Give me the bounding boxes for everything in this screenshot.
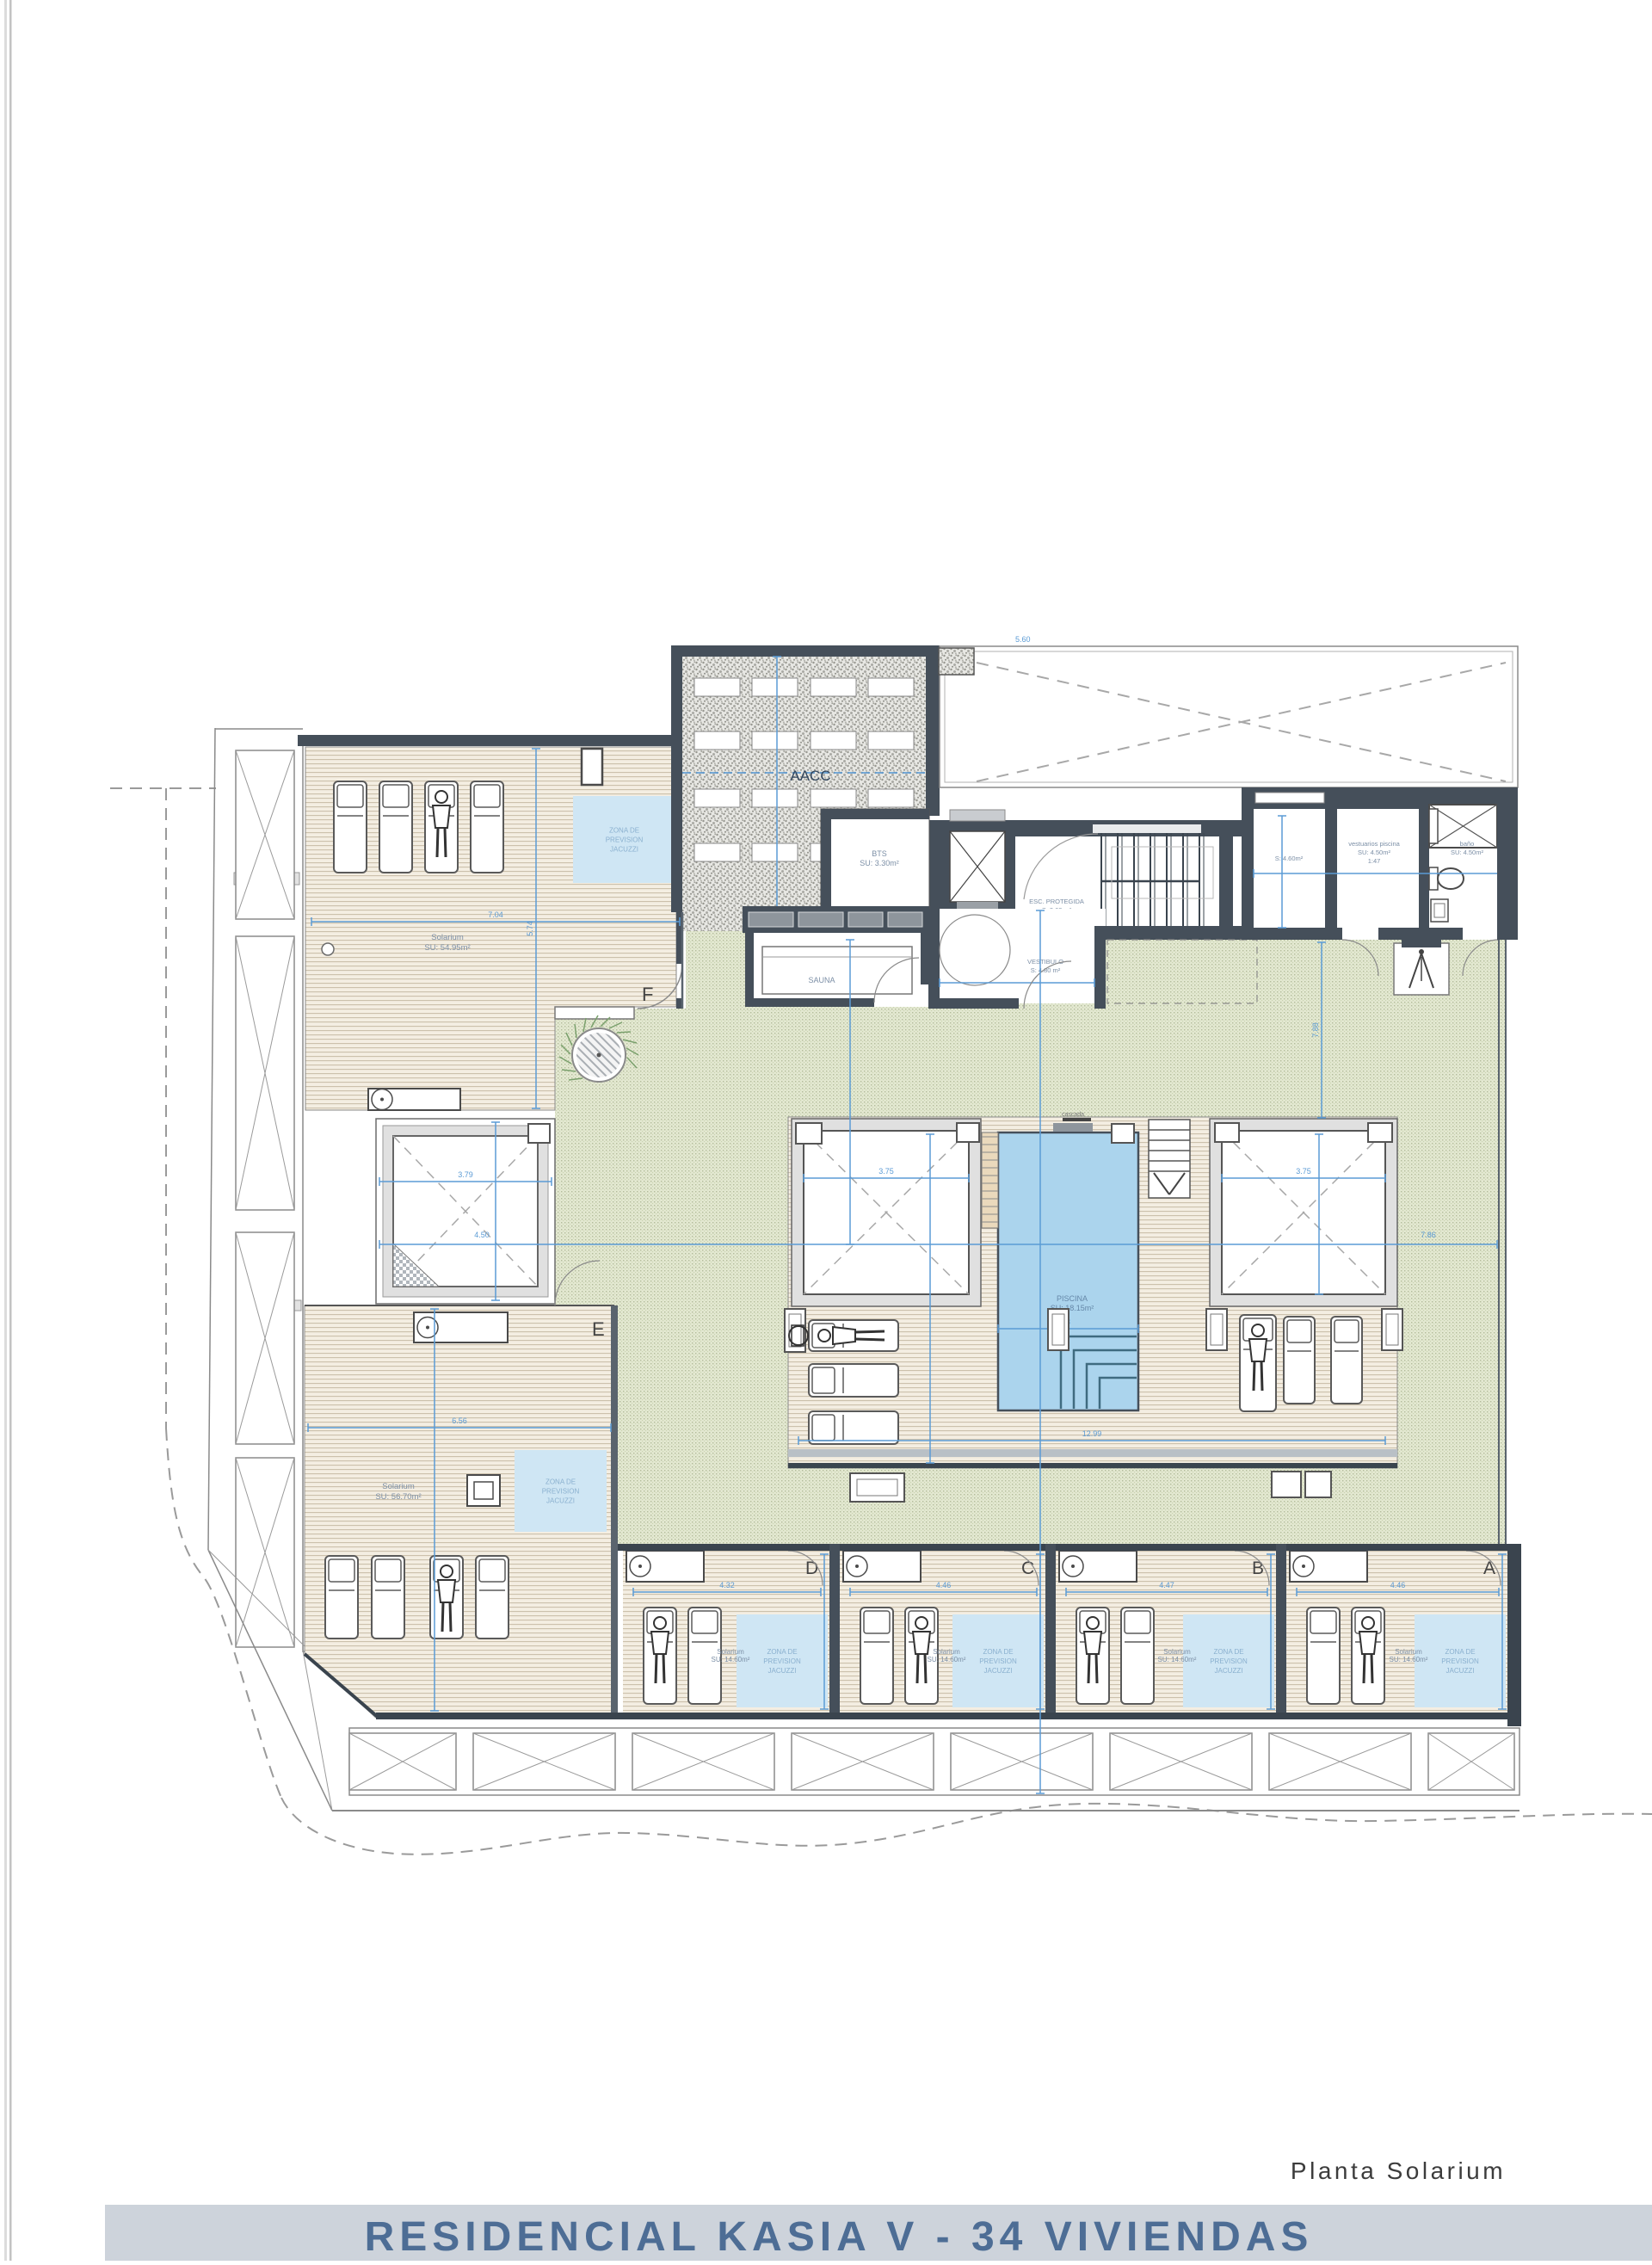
svg-text:3.75: 3.75	[1296, 1167, 1311, 1176]
svg-text:Planta Solarium: Planta Solarium	[1291, 2157, 1506, 2184]
svg-text:SU: 14.60m²: SU: 14.60m²	[1390, 1656, 1428, 1663]
svg-text:PREVISION: PREVISION	[1441, 1657, 1479, 1665]
svg-text:ZONA DE: ZONA DE	[609, 827, 639, 835]
svg-text:JACUZZI: JACUZZI	[984, 1667, 1013, 1675]
svg-text:AACC: AACC	[790, 768, 830, 784]
svg-text:BTS: BTS	[872, 849, 887, 858]
svg-text:JACUZZI: JACUZZI	[1215, 1667, 1243, 1675]
svg-text:SU: 3.30m²: SU: 3.30m²	[860, 859, 899, 867]
svg-text:3.75: 3.75	[878, 1167, 894, 1176]
svg-text:D: D	[805, 1558, 818, 1578]
svg-text:JACUZZI: JACUZZI	[768, 1667, 797, 1675]
svg-text:F: F	[642, 984, 653, 1005]
svg-text:SAUNA: SAUNA	[808, 976, 835, 984]
svg-text:S: 4.60m²: S: 4.60m²	[1275, 855, 1304, 862]
svg-text:7.04: 7.04	[488, 910, 503, 919]
svg-text:Solarium: Solarium	[1163, 1648, 1191, 1656]
svg-text:3.79: 3.79	[458, 1170, 473, 1179]
svg-text:PREVISION: PREVISION	[542, 1488, 580, 1496]
svg-text:SU: 14.60m²: SU: 14.60m²	[712, 1656, 750, 1663]
svg-text:6.56: 6.56	[452, 1416, 467, 1425]
svg-text:4.46: 4.46	[1390, 1581, 1406, 1589]
svg-text:A: A	[1483, 1558, 1495, 1578]
svg-text:B: B	[1252, 1558, 1264, 1578]
svg-text:12.99: 12.99	[1082, 1429, 1102, 1438]
svg-text:5.74: 5.74	[526, 921, 534, 936]
svg-text:4.46: 4.46	[936, 1581, 952, 1589]
svg-text:RESIDENCIAL KASIA V - 34 VIVIE: RESIDENCIAL KASIA V - 34 VIVIENDAS	[365, 2214, 1314, 2260]
svg-text:vestuarios piscina: vestuarios piscina	[1348, 840, 1400, 848]
svg-text:1:47: 1:47	[1368, 857, 1381, 865]
svg-text:VESTIBULO: VESTIBULO	[1027, 958, 1063, 966]
svg-text:ZONA DE: ZONA DE	[1213, 1648, 1243, 1656]
svg-text:S: 4.80 m²: S: 4.80 m²	[1031, 966, 1061, 974]
svg-text:7.86: 7.86	[1421, 1231, 1436, 1239]
svg-text:PREVISION: PREVISION	[606, 836, 644, 844]
svg-text:Solarium: Solarium	[933, 1648, 960, 1656]
svg-text:PISCINA: PISCINA	[1057, 1294, 1088, 1303]
svg-text:4.50: 4.50	[474, 1231, 490, 1239]
svg-text:C: C	[1021, 1558, 1034, 1578]
svg-text:SU: 4.50m²: SU: 4.50m²	[1358, 849, 1390, 856]
svg-text:JACUZZI: JACUZZI	[1446, 1667, 1475, 1675]
svg-text:ZONA DE: ZONA DE	[546, 1478, 576, 1486]
svg-text:ZONA DE: ZONA DE	[983, 1648, 1013, 1656]
svg-text:SU: 14.60m²: SU: 14.60m²	[1158, 1656, 1197, 1663]
svg-text:7.88: 7.88	[1311, 1022, 1320, 1038]
svg-text:Solarium: Solarium	[717, 1648, 744, 1656]
svg-text:SU: 14.60m²: SU: 14.60m²	[928, 1656, 966, 1663]
svg-text:cascada: cascada	[1062, 1112, 1084, 1118]
svg-text:JACUZZI: JACUZZI	[546, 1497, 575, 1505]
svg-text:ZONA DE: ZONA DE	[767, 1648, 797, 1656]
svg-text:ESC. PROTEGIDA: ESC. PROTEGIDA	[1029, 898, 1084, 905]
svg-text:Solarium: Solarium	[1395, 1648, 1422, 1656]
svg-text:Solarium: Solarium	[382, 1482, 415, 1491]
svg-text:baño: baño	[1460, 840, 1475, 848]
svg-text:SU: 4.50m²: SU: 4.50m²	[1451, 849, 1483, 856]
svg-text:PREVISION: PREVISION	[763, 1657, 801, 1665]
svg-text:4.47: 4.47	[1159, 1581, 1174, 1589]
svg-text:SU: 54.95m²: SU: 54.95m²	[424, 943, 470, 953]
svg-text:PREVISION: PREVISION	[979, 1657, 1017, 1665]
svg-text:PREVISION: PREVISION	[1210, 1657, 1248, 1665]
svg-text:SU: 56.70m²: SU: 56.70m²	[375, 1492, 421, 1502]
svg-text:Solarium: Solarium	[431, 933, 464, 942]
svg-text:JACUZZI: JACUZZI	[610, 846, 638, 854]
svg-text:5.60: 5.60	[1015, 635, 1031, 644]
svg-text:ZONA DE: ZONA DE	[1445, 1648, 1475, 1656]
svg-text:E: E	[592, 1318, 605, 1340]
svg-text:4.32: 4.32	[719, 1581, 735, 1589]
